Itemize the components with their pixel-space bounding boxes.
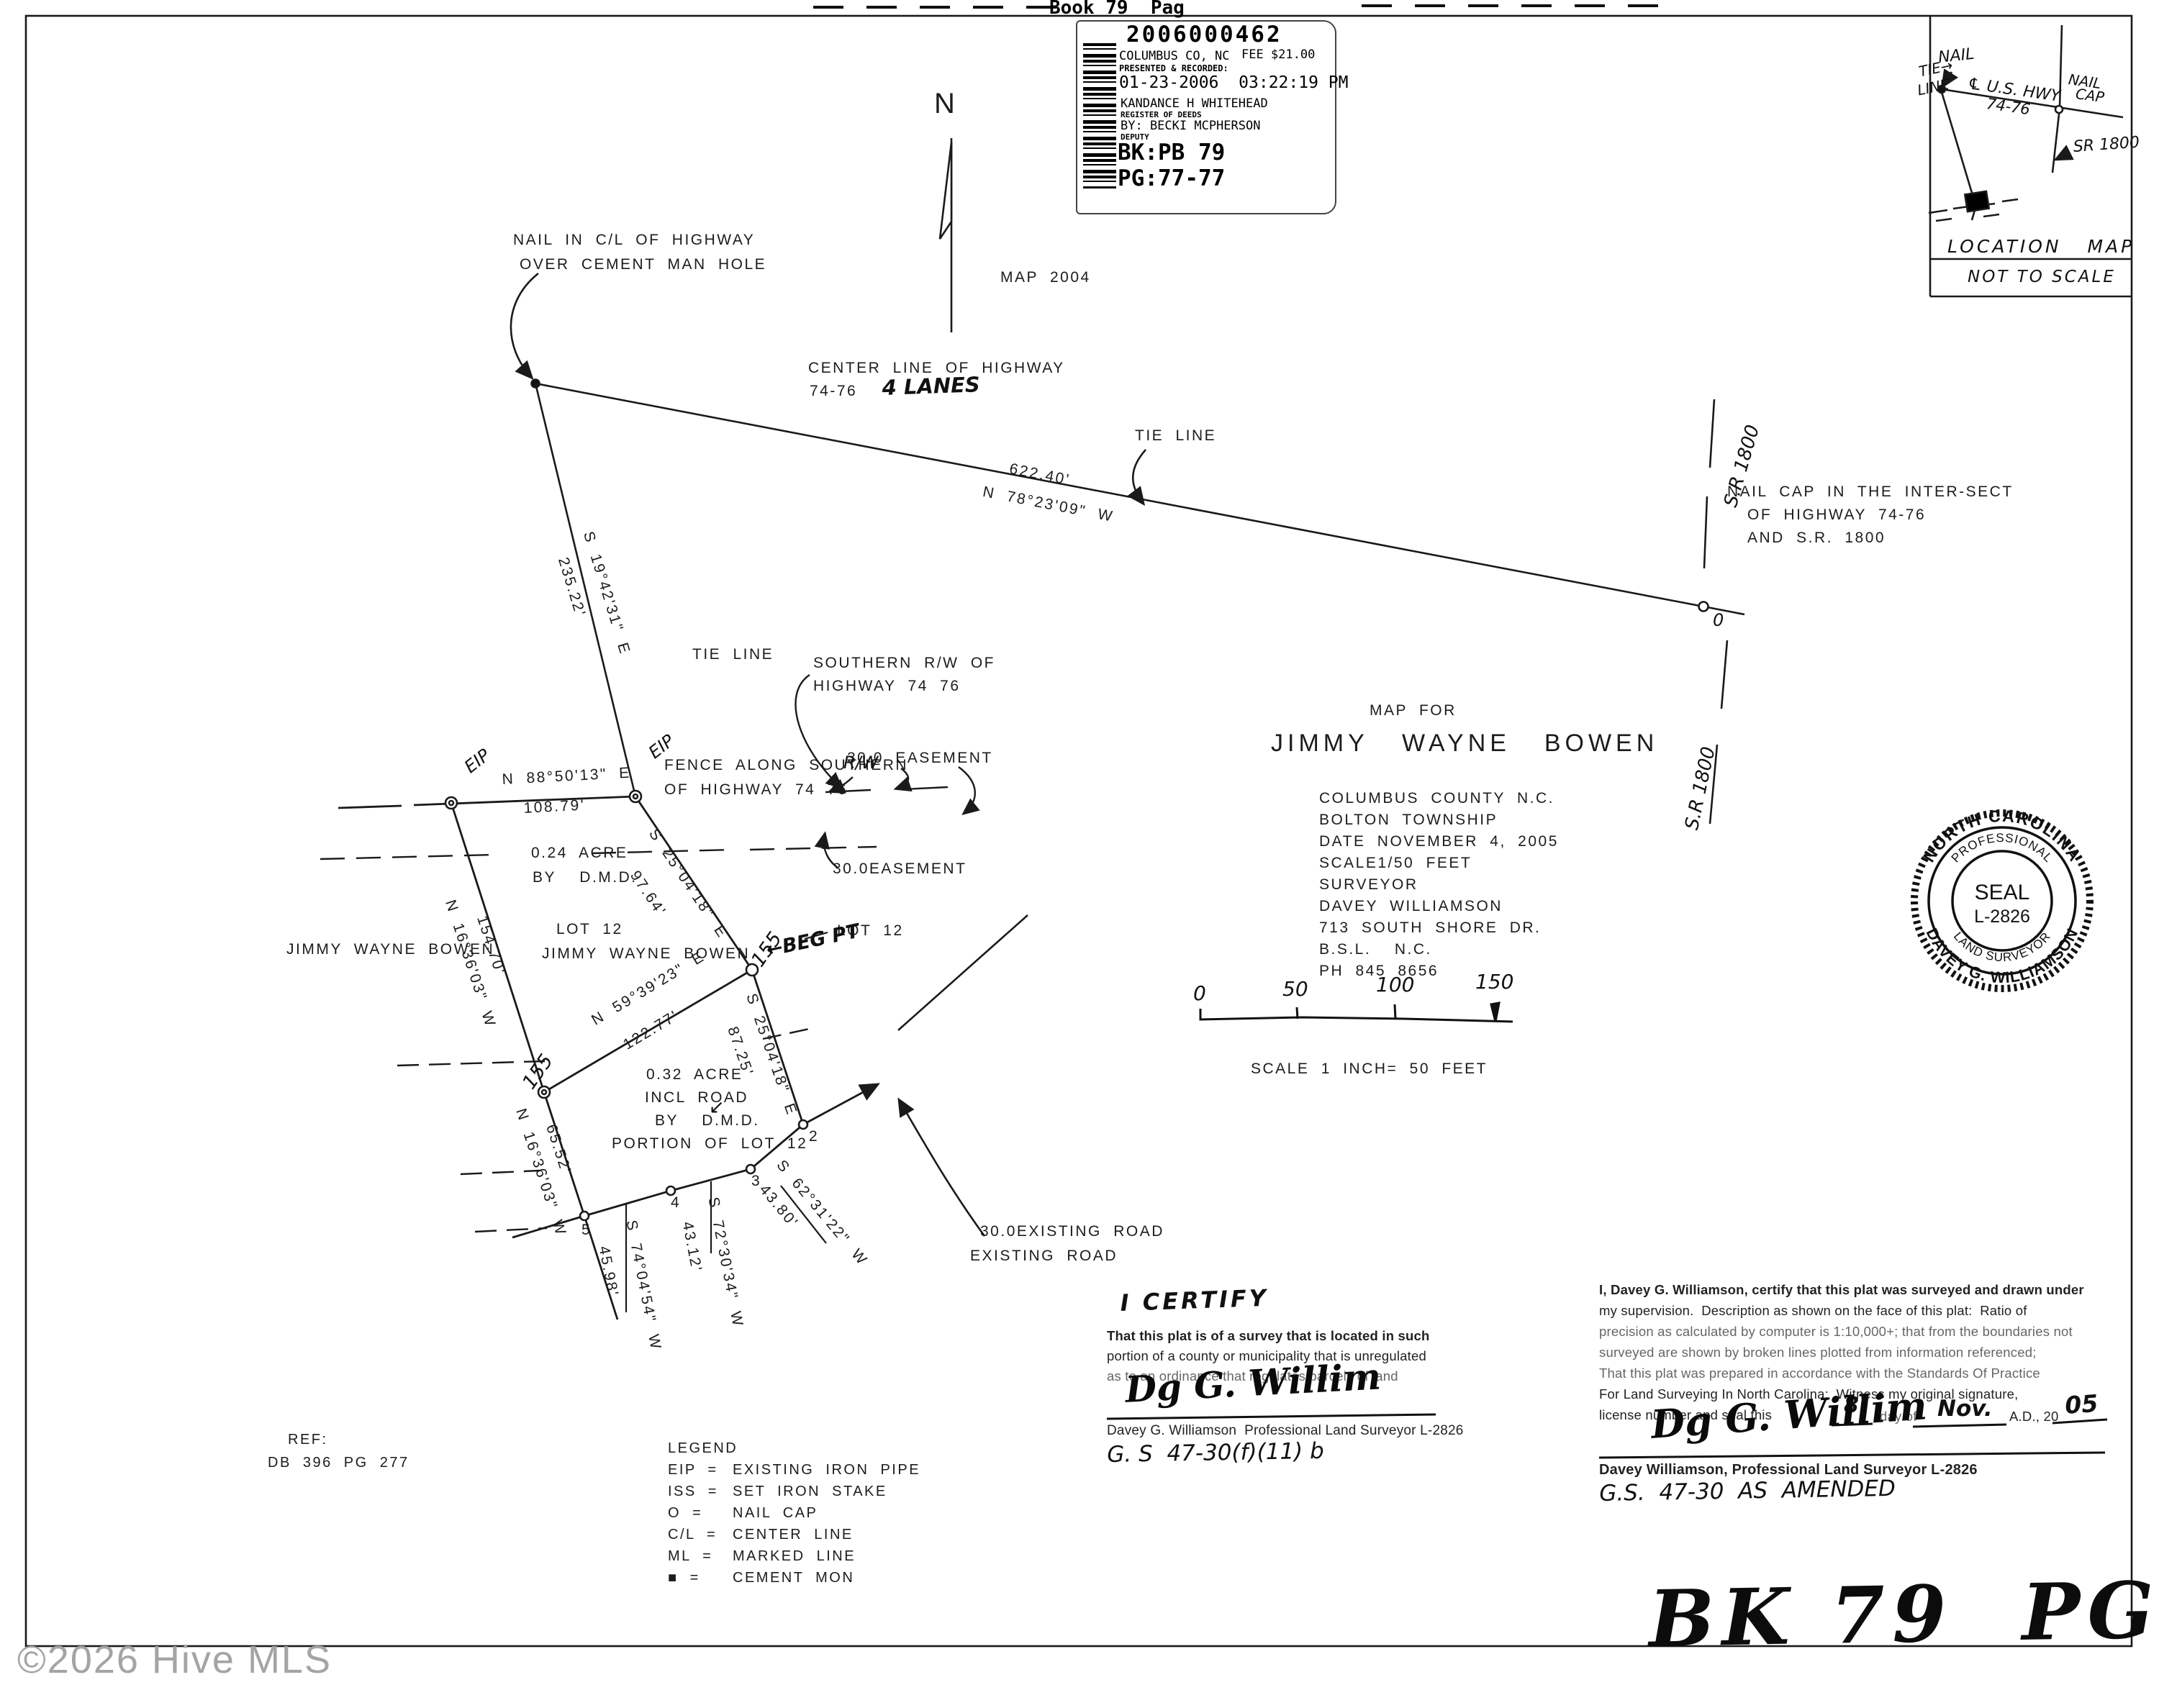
north-letter: N	[934, 88, 956, 120]
seal-center-1: SEAL	[1975, 881, 2030, 904]
nail-note-2: OVER CEMENT MAN HOLE	[520, 256, 766, 273]
scan-artifact-dash-1	[813, 6, 1062, 9]
north-arrow	[940, 138, 951, 332]
cert-right-month: Nov.	[1937, 1396, 1993, 1422]
cert-left-gs: G. S 47-30(f)(11) b	[1107, 1438, 1324, 1468]
nail-callout	[511, 273, 540, 388]
tb-address: 713 SOUTH SHORE DR.	[1319, 919, 1541, 937]
stamp-bk: BK:PB 79	[1118, 140, 1225, 165]
cert-right-line-2: my supervision. Description as shown on …	[1599, 1303, 2027, 1319]
point-5-label: 5	[581, 1222, 592, 1239]
stamp-register: KANDANCE H WHITEHEAD	[1121, 96, 1268, 111]
ref-label: REF:	[288, 1432, 328, 1448]
mls-watermark: ©2026 Hive MLS	[17, 1637, 332, 1682]
p2-acreage-3: BY D.M.D.	[655, 1112, 760, 1130]
p1-acreage-2: BY D.M.D.	[533, 869, 638, 886]
legend-key-iss: ISS =	[668, 1484, 718, 1500]
p1-acreage-1: 0.24 ACRE	[531, 845, 628, 862]
tb-surveyor: SURVEYOR	[1319, 876, 1418, 894]
ref-value: DB 396 PG 277	[268, 1455, 409, 1471]
scan-artifact-dash-2	[1362, 4, 1671, 7]
existing-road-1: 30.0EXISTING ROAD	[980, 1223, 1164, 1240]
tie-line-arrow	[1133, 450, 1146, 503]
stamp-pg: PG:77-77	[1118, 165, 1225, 191]
scale-bar	[1200, 1003, 1513, 1022]
cert-right-name: Davey Williamson, Professional Land Surv…	[1599, 1462, 1978, 1478]
scalebar-caption: SCALE 1 INCH= 50 FEET	[1251, 1060, 1488, 1078]
stamp-doc-number: 2006000462	[1126, 22, 1282, 47]
nailcap-note-1: NAIL CAP IN THE INTER-SECT	[1727, 483, 2014, 501]
stamp-datetime: 01-23-2006 03:22:19 PM	[1119, 73, 1349, 92]
p1-lot-label: LOT 12	[556, 921, 623, 938]
legend-val-cl: CENTER LINE	[733, 1527, 854, 1543]
p2-acreage-1: 0.32 ACRE	[646, 1066, 743, 1084]
cert-left-line-1: That this plat is of a survey that is lo…	[1107, 1328, 1430, 1344]
fence-label-2: OF HIGHWAY 74 76	[664, 781, 848, 799]
cert-right-line-3: precision as calculated by computer is 1…	[1599, 1324, 2073, 1340]
legend-key-ml: ML =	[668, 1548, 712, 1565]
tb-county: COLUMBUS COUNTY N.C.	[1319, 790, 1554, 807]
stamp-presented: PRESENTED & RECORDED:	[1119, 63, 1228, 73]
nailcap-zero-mark: 0	[1713, 610, 1724, 630]
southern-rw-1: SOUTHERN R/W OF	[813, 655, 995, 672]
seal-inner-top: PROFESSIONAL	[1949, 831, 2056, 866]
locmap-title: LOCATION MAP	[1947, 236, 2135, 257]
seal-center-2: L-2826	[1974, 907, 2030, 927]
legend-val-eip: EXISTING IRON PIPE	[733, 1462, 920, 1478]
tb-township: BOLTON TOWNSHIP	[1319, 812, 1498, 829]
svg-text:PROFESSIONAL: PROFESSIONAL	[1949, 831, 2056, 866]
legend-val-iss: SET IRON STAKE	[733, 1484, 887, 1500]
easement-30b-label: 30.0EASEMENT	[833, 860, 967, 878]
p2-acreage-2: INCL ROAD	[645, 1089, 748, 1107]
cert-left-name: Davey G. Williamson Professional Land Su…	[1107, 1423, 1464, 1439]
legend-val-ml: MARKED LINE	[733, 1548, 856, 1565]
nailcap-note-3: AND S.R. 1800	[1747, 530, 1886, 547]
scalebar-150: 150	[1475, 970, 1513, 994]
stamp-fee: FEE $21.00	[1241, 47, 1315, 62]
tie2-label: TIE LINE	[692, 646, 774, 663]
tie-line-2	[535, 383, 635, 796]
scalebar-0: 0	[1193, 981, 1206, 1005]
scalebar-100: 100	[1376, 973, 1414, 996]
point-2-label: 2	[809, 1128, 819, 1145]
owner-title: JIMMY WAYNE BOWEN	[1271, 730, 1658, 758]
legend-key-eip: EIP =	[668, 1462, 718, 1478]
bk-pg-handwriting: BK 79 PG 77	[1648, 1563, 2159, 1665]
tb-scale: SCALE1/50 FEET	[1319, 855, 1472, 872]
point-3-label: 3	[751, 1173, 761, 1190]
cert-right-gs: G.S. 47-30 AS AMENDED	[1599, 1476, 1896, 1507]
centerline-label-2: 74-76	[810, 383, 857, 400]
p1-top-distance: 108.79'	[523, 797, 586, 817]
cert-right-line-1: I, Davey G. Williamson, certify that thi…	[1599, 1282, 2084, 1298]
surveyor-seal: NORTH CAROLINA DAVEY G. WILLIAMSON PROFE…	[1914, 807, 2090, 989]
tb-date: DATE NOVEMBER 4, 2005	[1319, 833, 1559, 850]
point-4-label: 4	[671, 1194, 681, 1212]
legend-key-cl: C/L =	[668, 1527, 717, 1543]
legend-val-cement: CEMENT MON	[733, 1570, 854, 1586]
cement-monument-square	[1965, 191, 1988, 212]
cert-right-ad: A.D., 20	[2009, 1409, 2058, 1425]
stamp-deputy-by: BY: BECKI MCPHERSON	[1121, 119, 1260, 133]
nail-note-1: NAIL IN C/L OF HIGHWAY	[513, 232, 755, 249]
survey-plat-scan: NORTH CAROLINA DAVEY G. WILLIAMSON PROFE…	[0, 0, 2159, 1708]
scalebar-50: 50	[1282, 977, 1308, 1001]
legend-val-nailcap: NAIL CAP	[733, 1505, 818, 1522]
cert-left-title: I CERTIFY	[1120, 1284, 1269, 1317]
cert-right-line-5: That this plat was prepared in accordanc…	[1599, 1366, 2040, 1381]
book-page-header: Book 79 Pag	[1049, 0, 1185, 19]
p2-acreage-4: PORTION OF LOT 12	[612, 1135, 807, 1153]
legend-key-cement: ■ =	[668, 1570, 700, 1586]
locmap-not-to-scale: NOT TO SCALE	[1968, 268, 2116, 286]
barcode	[1083, 43, 1116, 188]
easement-30-label: 30.0 EASEMENT	[847, 750, 993, 767]
cert-right-line-4: surveyed are shown by broken lines plott…	[1599, 1345, 2037, 1361]
nailcap-note-2: OF HIGHWAY 74-76	[1747, 507, 1926, 524]
recording-stamp: 2006000462 COLUMBUS CO, NC FEE $21.00 PR…	[1076, 20, 1336, 214]
tb-city: B.S.L. N.C.	[1319, 941, 1432, 958]
p1-owner-label: JIMMY WAYNE BOWEN	[542, 945, 750, 963]
legend-title: LEGEND	[668, 1440, 738, 1457]
cert-right-year: 05	[2064, 1389, 2099, 1419]
southern-rw-2: HIGHWAY 74 76	[813, 678, 961, 695]
map-2004-note: MAP 2004	[1000, 269, 1091, 286]
lanes-note: 4 LANES	[882, 372, 980, 400]
tie-line-label-hwy: TIE LINE	[1135, 427, 1216, 445]
tb-surveyor-name: DAVEY WILLIAMSON	[1319, 898, 1503, 915]
existing-road-2: EXISTING ROAD	[970, 1248, 1118, 1265]
stamp-county: COLUMBUS CO, NC	[1119, 49, 1230, 63]
owner-left-label: JIMMY WAYNE BOWEN	[286, 941, 494, 958]
existing-road-lines	[898, 915, 1028, 1236]
map-for-label: MAP FOR	[1370, 702, 1457, 719]
legend-key-nailcap: O =	[668, 1505, 702, 1522]
p2-arrow-mark: ↙	[709, 1096, 725, 1118]
plat-linework: NORTH CAROLINA DAVEY G. WILLIAMSON PROFE…	[0, 0, 2159, 1708]
